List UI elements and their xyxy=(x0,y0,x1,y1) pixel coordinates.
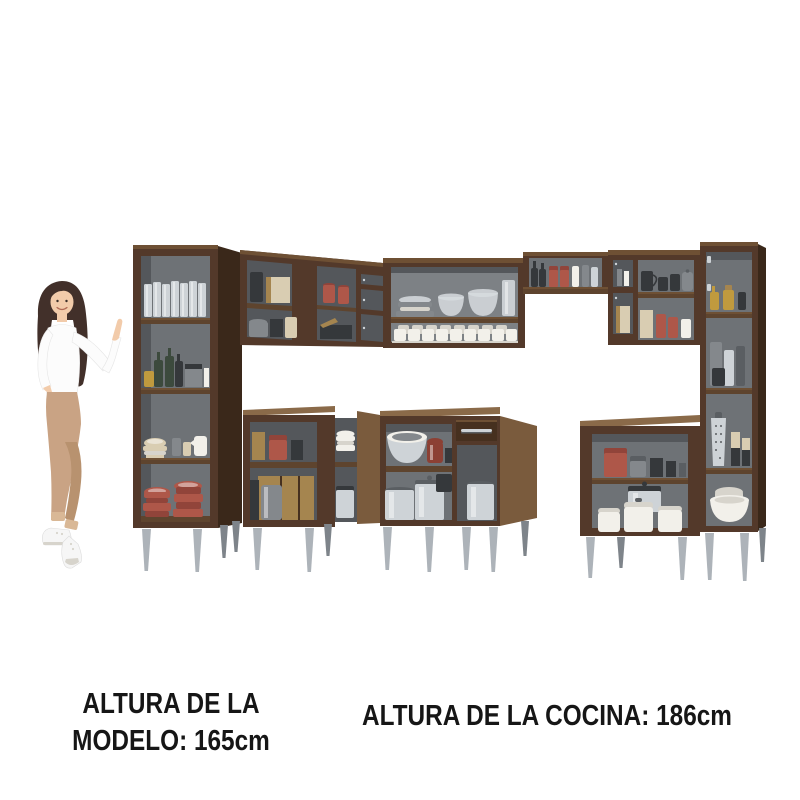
base-cabinet-drawer xyxy=(380,407,537,572)
drawer xyxy=(456,420,497,521)
boards-and-bin xyxy=(250,476,314,520)
glass-tumblers xyxy=(144,281,206,317)
wall-cabinet-right xyxy=(608,250,700,345)
wall-cabinet-left-wing xyxy=(240,250,383,347)
model-sneakers xyxy=(42,528,81,568)
product-image-page: { "page": {"width_px": 800, "height_px":… xyxy=(0,0,800,800)
wall-cabinet-middle xyxy=(383,258,525,348)
model-illustration xyxy=(15,272,130,574)
model-pant-cuff xyxy=(51,512,65,521)
tall-cabinet-right xyxy=(700,242,766,581)
model-pointing-hand xyxy=(112,319,122,341)
cabinet-legs xyxy=(253,524,332,572)
model-height-caption: ALTURA DE LA MODELO: 165cm xyxy=(21,686,321,760)
model-height-line1: ALTURA DE LA xyxy=(45,686,297,723)
model-right-arm-forearm xyxy=(102,336,121,373)
model-height-line2: MODELO: 165cm xyxy=(45,723,297,760)
base-cabinet-right xyxy=(580,415,700,580)
model-eye xyxy=(56,300,58,302)
model-pant-cuff xyxy=(64,519,79,531)
model-figure xyxy=(37,281,122,568)
drawer-handle xyxy=(461,429,492,432)
kitchen-set-illustration xyxy=(130,240,770,585)
cabinet-legs xyxy=(705,528,766,581)
base-cabinet-corner-left xyxy=(243,406,335,572)
cabinet-legs xyxy=(586,537,687,580)
cabinet-legs xyxy=(142,521,240,572)
model-eye xyxy=(65,300,67,302)
kitchen-height-caption: ALTURA DE LA COCINA: 186cm xyxy=(330,699,730,733)
cabinet-legs xyxy=(383,521,529,572)
kitchen-height-text: ALTURA DE LA COCINA: 186cm xyxy=(362,699,698,733)
base-cabinet-corner xyxy=(335,411,380,524)
tall-cabinet-left xyxy=(133,245,242,572)
bowls-and-jars xyxy=(143,436,207,458)
wall-cabinet-bridge xyxy=(523,252,608,294)
